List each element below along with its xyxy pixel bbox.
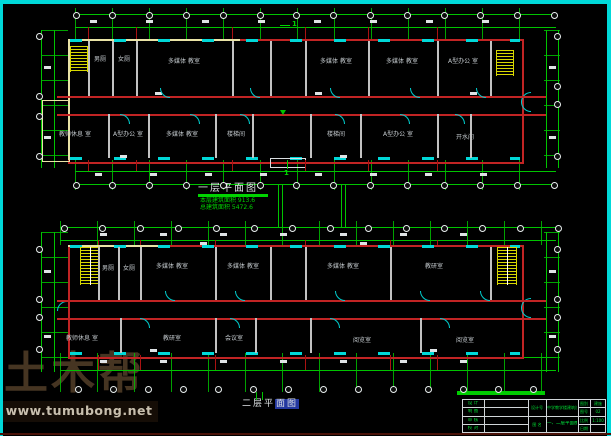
dimension-extension-line bbox=[341, 184, 342, 227]
dim-text-blob bbox=[160, 360, 167, 363]
room-label: 教师休息 室 bbox=[66, 336, 98, 342]
stair-icon bbox=[496, 50, 514, 76]
axis-bubble bbox=[441, 12, 448, 19]
red-axis-stub bbox=[437, 27, 438, 39]
red-axis-stub bbox=[437, 240, 438, 245]
dim-text-blob bbox=[44, 335, 51, 338]
red-axis-stub bbox=[88, 27, 89, 39]
dimension-extension-line bbox=[282, 184, 283, 227]
axis-bubble bbox=[73, 12, 80, 19]
wall-partition bbox=[305, 41, 307, 96]
room-label: 阅览室 bbox=[456, 338, 474, 344]
wall-partition bbox=[108, 114, 110, 158]
dim-text-blob bbox=[150, 349, 157, 352]
axis-bubble bbox=[61, 225, 68, 232]
dim-text-blob bbox=[480, 173, 487, 176]
dim-text-blob bbox=[426, 20, 433, 23]
red-axis-stub bbox=[368, 27, 369, 39]
wall-partition bbox=[470, 114, 472, 158]
wall-partition bbox=[360, 114, 362, 158]
axis-bubble bbox=[36, 93, 43, 100]
red-wall-stub bbox=[520, 114, 546, 116]
dim-text-blob bbox=[340, 155, 347, 158]
title-block-value: 02 bbox=[591, 409, 605, 415]
axis-bubble bbox=[220, 182, 227, 189]
frame-border-bottom bbox=[0, 433, 611, 435]
corridor-wall bbox=[68, 300, 520, 302]
frame-border-left bbox=[0, 0, 3, 436]
dimension-extension-line bbox=[278, 184, 279, 227]
corridor-wall bbox=[68, 318, 520, 320]
plan2-title-highlight: 面图 bbox=[275, 399, 299, 409]
title-block-label: 校 对 bbox=[463, 426, 483, 432]
room-label: A型办公 室 bbox=[113, 132, 143, 138]
wall-partition bbox=[232, 41, 234, 96]
dim-text-blob bbox=[340, 360, 347, 363]
room-label: 阅览室 bbox=[353, 338, 371, 344]
red-wall-stub bbox=[520, 318, 546, 320]
axis-bubble bbox=[477, 182, 484, 189]
axis-bubble bbox=[477, 12, 484, 19]
axis-bubble bbox=[257, 182, 264, 189]
axis-bubble bbox=[514, 12, 521, 19]
axis-bubble bbox=[320, 386, 327, 393]
axis-bubble bbox=[551, 12, 558, 19]
area-stat: 总建筑面积 5472.6 bbox=[200, 205, 253, 211]
dim-text-blob bbox=[315, 92, 322, 95]
title-block-label: 比例 bbox=[579, 418, 589, 424]
red-axis-stub bbox=[390, 355, 391, 370]
dim-text-blob bbox=[280, 233, 287, 236]
wall-partition bbox=[437, 41, 439, 96]
wall-partition bbox=[120, 318, 122, 353]
room-label: 多媒体 教室 bbox=[156, 264, 188, 270]
red-axis-stub bbox=[305, 355, 306, 370]
title-block-label: 图 名 bbox=[529, 422, 545, 428]
room-label: 教研室 bbox=[163, 336, 181, 342]
axis-bubble bbox=[555, 225, 562, 232]
red-axis-stub bbox=[232, 27, 233, 39]
title-block-drawing: 一、二层平面图 bbox=[547, 421, 577, 427]
axis-bubble bbox=[554, 296, 561, 303]
room-label: 男厕 bbox=[102, 266, 114, 272]
dim-text-blob bbox=[549, 136, 556, 139]
axis-bubble bbox=[404, 12, 411, 19]
wall-partition bbox=[310, 318, 312, 353]
axis-bubble bbox=[36, 33, 43, 40]
axis-bubble bbox=[293, 12, 300, 19]
axis-bubble bbox=[137, 225, 144, 232]
wall-partition bbox=[305, 247, 307, 300]
title-block-label: 日期 bbox=[579, 426, 589, 432]
axis-bubble bbox=[327, 225, 334, 232]
dim-text-blob bbox=[430, 349, 437, 352]
dim-text-blob bbox=[258, 20, 265, 23]
axis-bubble bbox=[289, 225, 296, 232]
room-label: 多媒体 教室 bbox=[166, 132, 198, 138]
room-label: A型办公 室 bbox=[448, 59, 478, 65]
red-axis-stub bbox=[390, 240, 391, 245]
axis-bubble bbox=[479, 225, 486, 232]
axis-bubble bbox=[330, 12, 337, 19]
title-block-value: 1:100 bbox=[591, 418, 605, 424]
dim-text-blob bbox=[44, 66, 51, 69]
axis-bubble bbox=[554, 33, 561, 40]
dim-text-blob bbox=[482, 20, 489, 23]
dim-text-blob bbox=[44, 270, 51, 273]
entrance-arrow-icon bbox=[280, 110, 286, 115]
wall-partition bbox=[437, 114, 439, 158]
axis-bubble bbox=[554, 153, 561, 160]
dim-text-blob bbox=[200, 242, 207, 245]
dim-text-blob bbox=[205, 173, 212, 176]
dim-text-blob bbox=[220, 233, 227, 236]
axis-bubble bbox=[73, 182, 80, 189]
axis-bubble bbox=[285, 386, 292, 393]
room-label: 会议室 bbox=[225, 336, 243, 342]
red-wall-stub bbox=[57, 300, 68, 302]
entrance-steps bbox=[270, 158, 306, 168]
axis-bubble bbox=[403, 225, 410, 232]
dim-text-blob bbox=[340, 233, 347, 236]
wall-partition bbox=[270, 41, 272, 96]
axis-bubble bbox=[75, 386, 82, 393]
axis-bubble bbox=[551, 182, 558, 189]
plan1-title: 一层平面图 bbox=[198, 184, 258, 194]
wall-partition bbox=[420, 318, 422, 353]
red-axis-stub bbox=[98, 355, 99, 370]
section-line bbox=[287, 160, 288, 169]
wall-partition bbox=[390, 247, 392, 300]
title-block-label: 制 图 bbox=[463, 409, 483, 415]
dim-text-blob bbox=[425, 173, 432, 176]
axis-bubble bbox=[441, 225, 448, 232]
dim-text-blob bbox=[280, 360, 287, 363]
red-axis-stub bbox=[305, 160, 306, 171]
dim-text-blob bbox=[95, 173, 102, 176]
dimension-ticks bbox=[544, 30, 560, 168]
red-axis-stub bbox=[437, 160, 438, 171]
wall-partition bbox=[98, 247, 100, 300]
dim-text-blob bbox=[400, 233, 407, 236]
dim-text-blob bbox=[220, 360, 227, 363]
axis-bubble bbox=[554, 101, 561, 108]
room-label: 女厕 bbox=[123, 266, 135, 272]
axis-bubble bbox=[110, 386, 117, 393]
window-strip bbox=[70, 352, 520, 355]
axis-bubble bbox=[425, 386, 432, 393]
red-axis-stub bbox=[305, 240, 306, 245]
dim-text-blob bbox=[549, 335, 556, 338]
axis-bubble bbox=[183, 182, 190, 189]
corridor-wall bbox=[68, 96, 520, 98]
wall-partition bbox=[490, 41, 492, 96]
axis-bubble bbox=[36, 296, 43, 303]
dim-text-blob bbox=[160, 233, 167, 236]
axis-bubble bbox=[441, 182, 448, 189]
axis-bubble bbox=[390, 386, 397, 393]
title-block-line bbox=[578, 424, 606, 425]
axis-bubble bbox=[36, 346, 43, 353]
dim-text-blob bbox=[549, 66, 556, 69]
frame-border-top bbox=[0, 0, 611, 4]
axis-bubble bbox=[554, 346, 561, 353]
red-axis-stub bbox=[140, 355, 141, 370]
title-block-line bbox=[578, 407, 606, 408]
dim-text-blob bbox=[120, 155, 127, 158]
axis-bubble bbox=[404, 182, 411, 189]
axis-bubble bbox=[554, 246, 561, 253]
title-block-project: 中学教学楼建筑设计 bbox=[547, 405, 577, 411]
section-line bbox=[280, 25, 290, 26]
dimension-extension-line bbox=[345, 184, 346, 227]
title-block-label: 设 计 bbox=[463, 401, 483, 407]
room-label: 多媒体 教室 bbox=[227, 264, 259, 270]
stair-icon bbox=[497, 247, 517, 285]
red-axis-stub bbox=[305, 27, 306, 39]
axis-bubble bbox=[99, 225, 106, 232]
dim-text-blob bbox=[549, 270, 556, 273]
dim-text-blob bbox=[90, 20, 97, 23]
axis-bubble bbox=[293, 182, 300, 189]
dim-text-blob bbox=[202, 20, 209, 23]
red-axis-stub bbox=[98, 240, 99, 245]
red-axis-stub bbox=[136, 27, 137, 39]
axis-bubble bbox=[517, 225, 524, 232]
axis-bubble bbox=[146, 182, 153, 189]
axis-bubble bbox=[146, 12, 153, 19]
axis-bubble bbox=[367, 12, 374, 19]
dim-text-blob bbox=[460, 233, 467, 236]
window-strip bbox=[70, 245, 520, 248]
dimension-extension-line bbox=[262, 392, 263, 400]
axis-bubble bbox=[36, 314, 43, 321]
dim-text-blob bbox=[360, 242, 367, 245]
axis-bubble bbox=[180, 386, 187, 393]
dim-text-blob bbox=[315, 173, 322, 176]
axis-bubble bbox=[36, 246, 43, 253]
wall-partition bbox=[368, 41, 370, 96]
axis-bubble bbox=[251, 225, 258, 232]
frame-border-right bbox=[607, 0, 611, 436]
axis-bubble bbox=[514, 182, 521, 189]
wall-partition bbox=[215, 318, 217, 353]
red-axis-stub bbox=[88, 160, 89, 171]
plan2-title: 二层平面图 bbox=[242, 400, 299, 409]
stair-icon bbox=[80, 247, 100, 285]
room-label: 多媒体 教室 bbox=[168, 59, 200, 65]
red-axis-stub bbox=[140, 240, 141, 245]
red-axis-stub bbox=[215, 355, 216, 370]
dimension-extension-line bbox=[256, 392, 257, 400]
room-label: 楼梯间 bbox=[227, 132, 245, 138]
room-label: 女厕 bbox=[118, 57, 130, 63]
red-axis-stub bbox=[368, 160, 369, 171]
room-label: A型办公 室 bbox=[383, 132, 413, 138]
title-block-value: 建施 bbox=[591, 401, 605, 407]
title-block-label: 图别 bbox=[579, 401, 589, 407]
axis-bubble bbox=[109, 12, 116, 19]
axis-bubble bbox=[495, 386, 502, 393]
dim-text-blob bbox=[370, 173, 377, 176]
axis-bubble bbox=[460, 386, 467, 393]
plan2-title-text: 二层平 bbox=[242, 399, 275, 409]
dim-text-blob bbox=[146, 20, 153, 23]
red-axis-stub bbox=[232, 160, 233, 171]
axis-bubble bbox=[355, 386, 362, 393]
wall-partition bbox=[88, 41, 90, 96]
red-axis-stub bbox=[136, 160, 137, 171]
room-label: 教研室 bbox=[425, 264, 443, 270]
title-block-label: 设计号 bbox=[529, 405, 545, 411]
red-wall-stub bbox=[520, 96, 546, 98]
dim-text-blob bbox=[150, 173, 157, 176]
axis-bubble bbox=[257, 12, 264, 19]
corridor-wall bbox=[68, 114, 520, 116]
axis-bubble bbox=[365, 225, 372, 232]
axis-bubble bbox=[330, 182, 337, 189]
red-wall-stub bbox=[57, 318, 68, 320]
title-block-label: 审 核 bbox=[463, 418, 483, 424]
red-wall-stub bbox=[520, 300, 546, 302]
axis-bubble bbox=[183, 12, 190, 19]
axis-bubble bbox=[145, 386, 152, 393]
wall-partition bbox=[310, 114, 312, 158]
room-label: 教师休息 室 bbox=[59, 132, 91, 138]
dim-text-blob bbox=[400, 360, 407, 363]
wall-partition bbox=[118, 247, 120, 300]
wall-partition bbox=[490, 247, 492, 300]
axis-bubble bbox=[220, 12, 227, 19]
stair-icon bbox=[70, 46, 88, 72]
axis-bubble bbox=[213, 225, 220, 232]
section-marker: 1 bbox=[284, 170, 289, 177]
wall-partition bbox=[148, 114, 150, 158]
axis-bubble bbox=[554, 83, 561, 90]
room-label: 楼梯间 bbox=[327, 132, 345, 138]
red-wall-stub bbox=[57, 96, 68, 98]
wall-partition bbox=[255, 318, 257, 353]
room-label: 男厕 bbox=[94, 57, 106, 63]
wall-partition bbox=[215, 247, 217, 300]
axis-bubble bbox=[175, 225, 182, 232]
dim-text-blob bbox=[100, 360, 107, 363]
dim-text-blob bbox=[44, 136, 51, 139]
wall-partition bbox=[112, 41, 114, 96]
dim-text-blob bbox=[314, 20, 321, 23]
axis-bubble bbox=[367, 182, 374, 189]
section-marker: 1 bbox=[292, 21, 297, 28]
axis-bubble bbox=[554, 314, 561, 321]
axis-bubble bbox=[215, 386, 222, 393]
dim-text-blob bbox=[370, 20, 377, 23]
room-label: 多媒体 教室 bbox=[320, 59, 352, 65]
room-label: 多媒体 教室 bbox=[327, 264, 359, 270]
cad-floorplan-canvas: 土木帮 1 1 男厕 女厕 多媒体 教室 多媒体 教室 多媒体 教室 A型办公 … bbox=[0, 0, 611, 436]
dim-text-blob bbox=[460, 360, 467, 363]
watermark-url: www.tumubong.net bbox=[6, 405, 153, 418]
wall-partition bbox=[140, 247, 142, 300]
dim-text-blob bbox=[470, 92, 477, 95]
room-label: 多媒体 教室 bbox=[386, 59, 418, 65]
title-block-label: 图号 bbox=[579, 409, 589, 415]
dim-text-blob bbox=[260, 173, 267, 176]
red-wall-stub bbox=[57, 114, 68, 116]
red-axis-stub bbox=[215, 240, 216, 245]
watermark-strip: www.tumubong.net bbox=[0, 401, 158, 422]
dim-text-blob bbox=[100, 233, 107, 236]
wall-partition bbox=[215, 114, 217, 158]
wall-partition bbox=[136, 41, 138, 96]
axis-bubble bbox=[36, 153, 43, 160]
axis-bubble bbox=[36, 113, 43, 120]
red-axis-stub bbox=[437, 355, 438, 370]
title-block-line bbox=[462, 416, 606, 417]
wall-partition bbox=[270, 247, 272, 300]
axis-bubble bbox=[109, 182, 116, 189]
wall-partition bbox=[252, 114, 254, 158]
axis-bubble bbox=[530, 386, 537, 393]
